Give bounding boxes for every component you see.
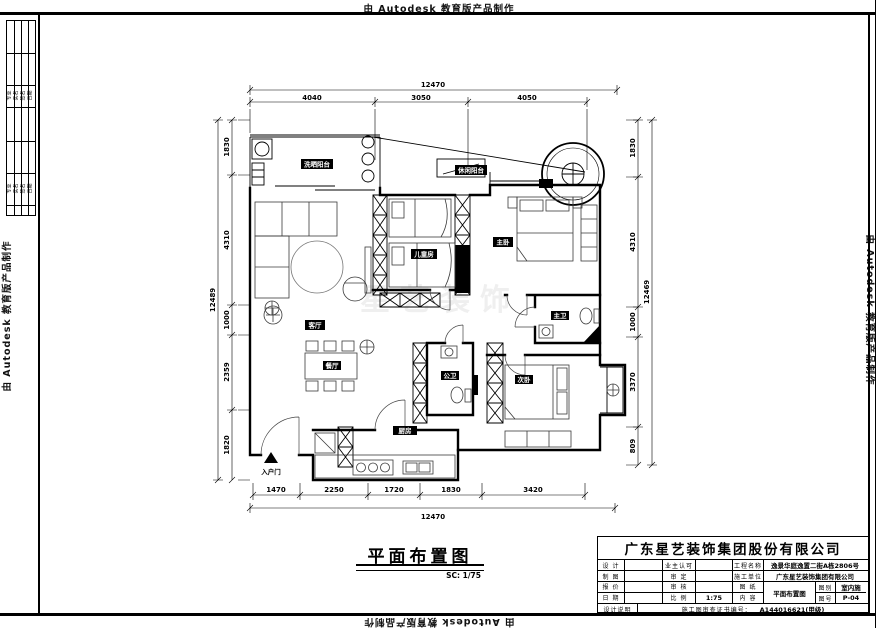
room-label-master-bath: 主卫 xyxy=(554,311,568,320)
dim-left-seg: 1820 xyxy=(223,435,231,455)
strip-cell: 专业 xyxy=(8,86,13,106)
dim-right-seg: 1000 xyxy=(629,312,637,332)
dim-left-seg: 1000 xyxy=(223,310,231,330)
field-date-value xyxy=(625,593,663,603)
field-cert-value: A144016621(甲级) xyxy=(760,604,825,614)
room-label-master: 主卧 xyxy=(497,238,511,247)
dim-bottom-overall: 12470 xyxy=(421,513,445,521)
dim-top-seg: 4050 xyxy=(517,94,537,102)
dim-left-overall: 12489 xyxy=(209,288,217,312)
field-sheet-label-1: 图 纸 xyxy=(733,582,763,592)
room-label-kids: 儿童房 xyxy=(413,250,434,259)
frame-outer-right-line xyxy=(875,0,876,628)
strip-cell: 实名 xyxy=(15,179,20,199)
room-label-kitchen: 厨房 xyxy=(399,426,413,435)
room-label-guest-bath: 公卫 xyxy=(444,372,458,380)
strip-cell: 签名 xyxy=(22,179,27,199)
signature-strip: 专业 实名 签名 日期 专业 实名 签名 日期 xyxy=(6,20,36,216)
field-sheet-number-value: P-04 xyxy=(836,593,866,603)
field-project-label: 工程名称 xyxy=(733,560,764,570)
furniture xyxy=(255,197,619,478)
field-sheet-label-2: 内 容 xyxy=(733,593,763,603)
dim-top-seg: 4040 xyxy=(302,94,322,102)
strip-cell: 日期 xyxy=(29,86,34,106)
field-drafting-value xyxy=(625,571,663,581)
field-design-value xyxy=(625,560,663,570)
company-name: 广东星艺装饰集团股份有限公司 xyxy=(598,537,868,560)
floor-plan: 12470 4040 3050 4050 12489 1830 4310 100… xyxy=(205,75,665,525)
field-owner-approval-label: 业主认可 xyxy=(663,560,696,570)
field-review-value xyxy=(696,582,733,592)
field-cert-label: 施工图审查证书编号： xyxy=(682,605,752,614)
dim-top-seg: 3050 xyxy=(411,94,431,102)
field-approver-label: 审 定 xyxy=(663,571,696,581)
autodesk-stamp-bottom: 由 Autodesk 教育版产品制作 xyxy=(0,616,878,628)
field-category-value: 室内施 xyxy=(836,582,866,592)
room-label-entry: 入户门 xyxy=(260,467,281,476)
dim-bottom-seg: 2250 xyxy=(324,486,344,494)
frame-left-line xyxy=(38,12,40,616)
field-project-value: 逸景华庭逸置二街A栋2806号 xyxy=(764,560,866,570)
field-owner-approval-value xyxy=(696,560,733,570)
field-review-label: 审 核 xyxy=(663,582,696,592)
room-label-wash-balcony: 洗晒阳台 xyxy=(304,160,331,169)
dim-top-overall: 12470 xyxy=(421,81,445,89)
field-design-label: 设 计 xyxy=(598,560,625,570)
field-approver-value xyxy=(696,571,733,581)
dim-bottom-seg: 1720 xyxy=(384,486,404,494)
field-date-label: 日 期 xyxy=(598,593,625,603)
strip-cell: 实名 xyxy=(15,86,20,106)
room-label-living: 客厅 xyxy=(308,321,323,330)
field-design-note-label: 设计说明 xyxy=(598,604,638,614)
field-category-label: 图别 xyxy=(816,582,836,592)
dim-right-overall: 12469 xyxy=(643,280,651,304)
field-scale-value: 1:75 xyxy=(696,593,733,603)
drawing-sheet: 由 Autodesk 教育版产品制作 由 Autodesk 教育版产品制作 由 … xyxy=(0,0,878,628)
title-block-bottom-row: 设计说明 施工图审查证书编号： A144016621(甲级) xyxy=(598,604,868,614)
dim-left-seg: 4310 xyxy=(223,230,231,250)
strip-cell: 专业 xyxy=(8,179,13,199)
frame-right-line xyxy=(868,12,870,616)
strip-cell: 签名 xyxy=(22,86,27,106)
dim-bottom-seg: 3420 xyxy=(523,486,543,494)
room-label-leisure-balcony: 休闲阳台 xyxy=(457,166,485,175)
field-drafting-label: 制 图 xyxy=(598,571,625,581)
frame-top-line xyxy=(0,12,876,15)
dim-right-seg: 4310 xyxy=(629,232,637,252)
autodesk-stamp-left: 由 Autodesk 教育版产品制作 xyxy=(0,196,13,436)
dim-left-seg: 2359 xyxy=(223,362,231,382)
title-block-rows-3-4: 报 价 审 核 日 期 比 例 1:75 图 纸 内 容 平面布置图 xyxy=(598,582,868,604)
dim-right-seg: 809 xyxy=(629,439,637,454)
field-sheet-number-label: 图号 xyxy=(816,593,836,603)
drawing-title-underline xyxy=(356,564,484,571)
title-block-row-2: 制 图 审 定 施工单位 广东星艺装饰集团有限公司 xyxy=(598,571,868,582)
field-scale-label: 比 例 xyxy=(663,593,696,603)
field-quote-label: 报 价 xyxy=(598,582,625,592)
dim-right-seg: 3370 xyxy=(629,372,637,392)
field-sheet-value: 平面布置图 xyxy=(764,582,816,604)
dim-bottom-seg: 1470 xyxy=(266,486,286,494)
drawing-scale: SC: 1/75 xyxy=(395,571,481,580)
entry-arrow-icon xyxy=(264,452,278,463)
strip-cell: 日期 xyxy=(29,179,34,199)
field-quote-value xyxy=(625,582,663,592)
dim-bottom-seg: 1830 xyxy=(441,486,461,494)
field-builder-value: 广东星艺装饰集团有限公司 xyxy=(764,571,866,581)
dim-left-seg: 1830 xyxy=(223,137,231,157)
dim-right-seg: 1830 xyxy=(629,138,637,158)
title-block-row-1: 设 计 业主认可 工程名称 逸景华庭逸置二街A栋2806号 xyxy=(598,560,868,571)
room-label-dining: 餐厅 xyxy=(325,361,340,370)
field-builder-label: 施工单位 xyxy=(733,571,764,581)
title-block: 广东星艺装饰集团股份有限公司 设 计 业主认可 工程名称 逸景华庭逸置二街A栋2… xyxy=(597,536,869,613)
room-label-second-bedroom: 次卧 xyxy=(518,375,532,384)
walls xyxy=(250,185,625,480)
hatched-pillars xyxy=(338,195,503,467)
